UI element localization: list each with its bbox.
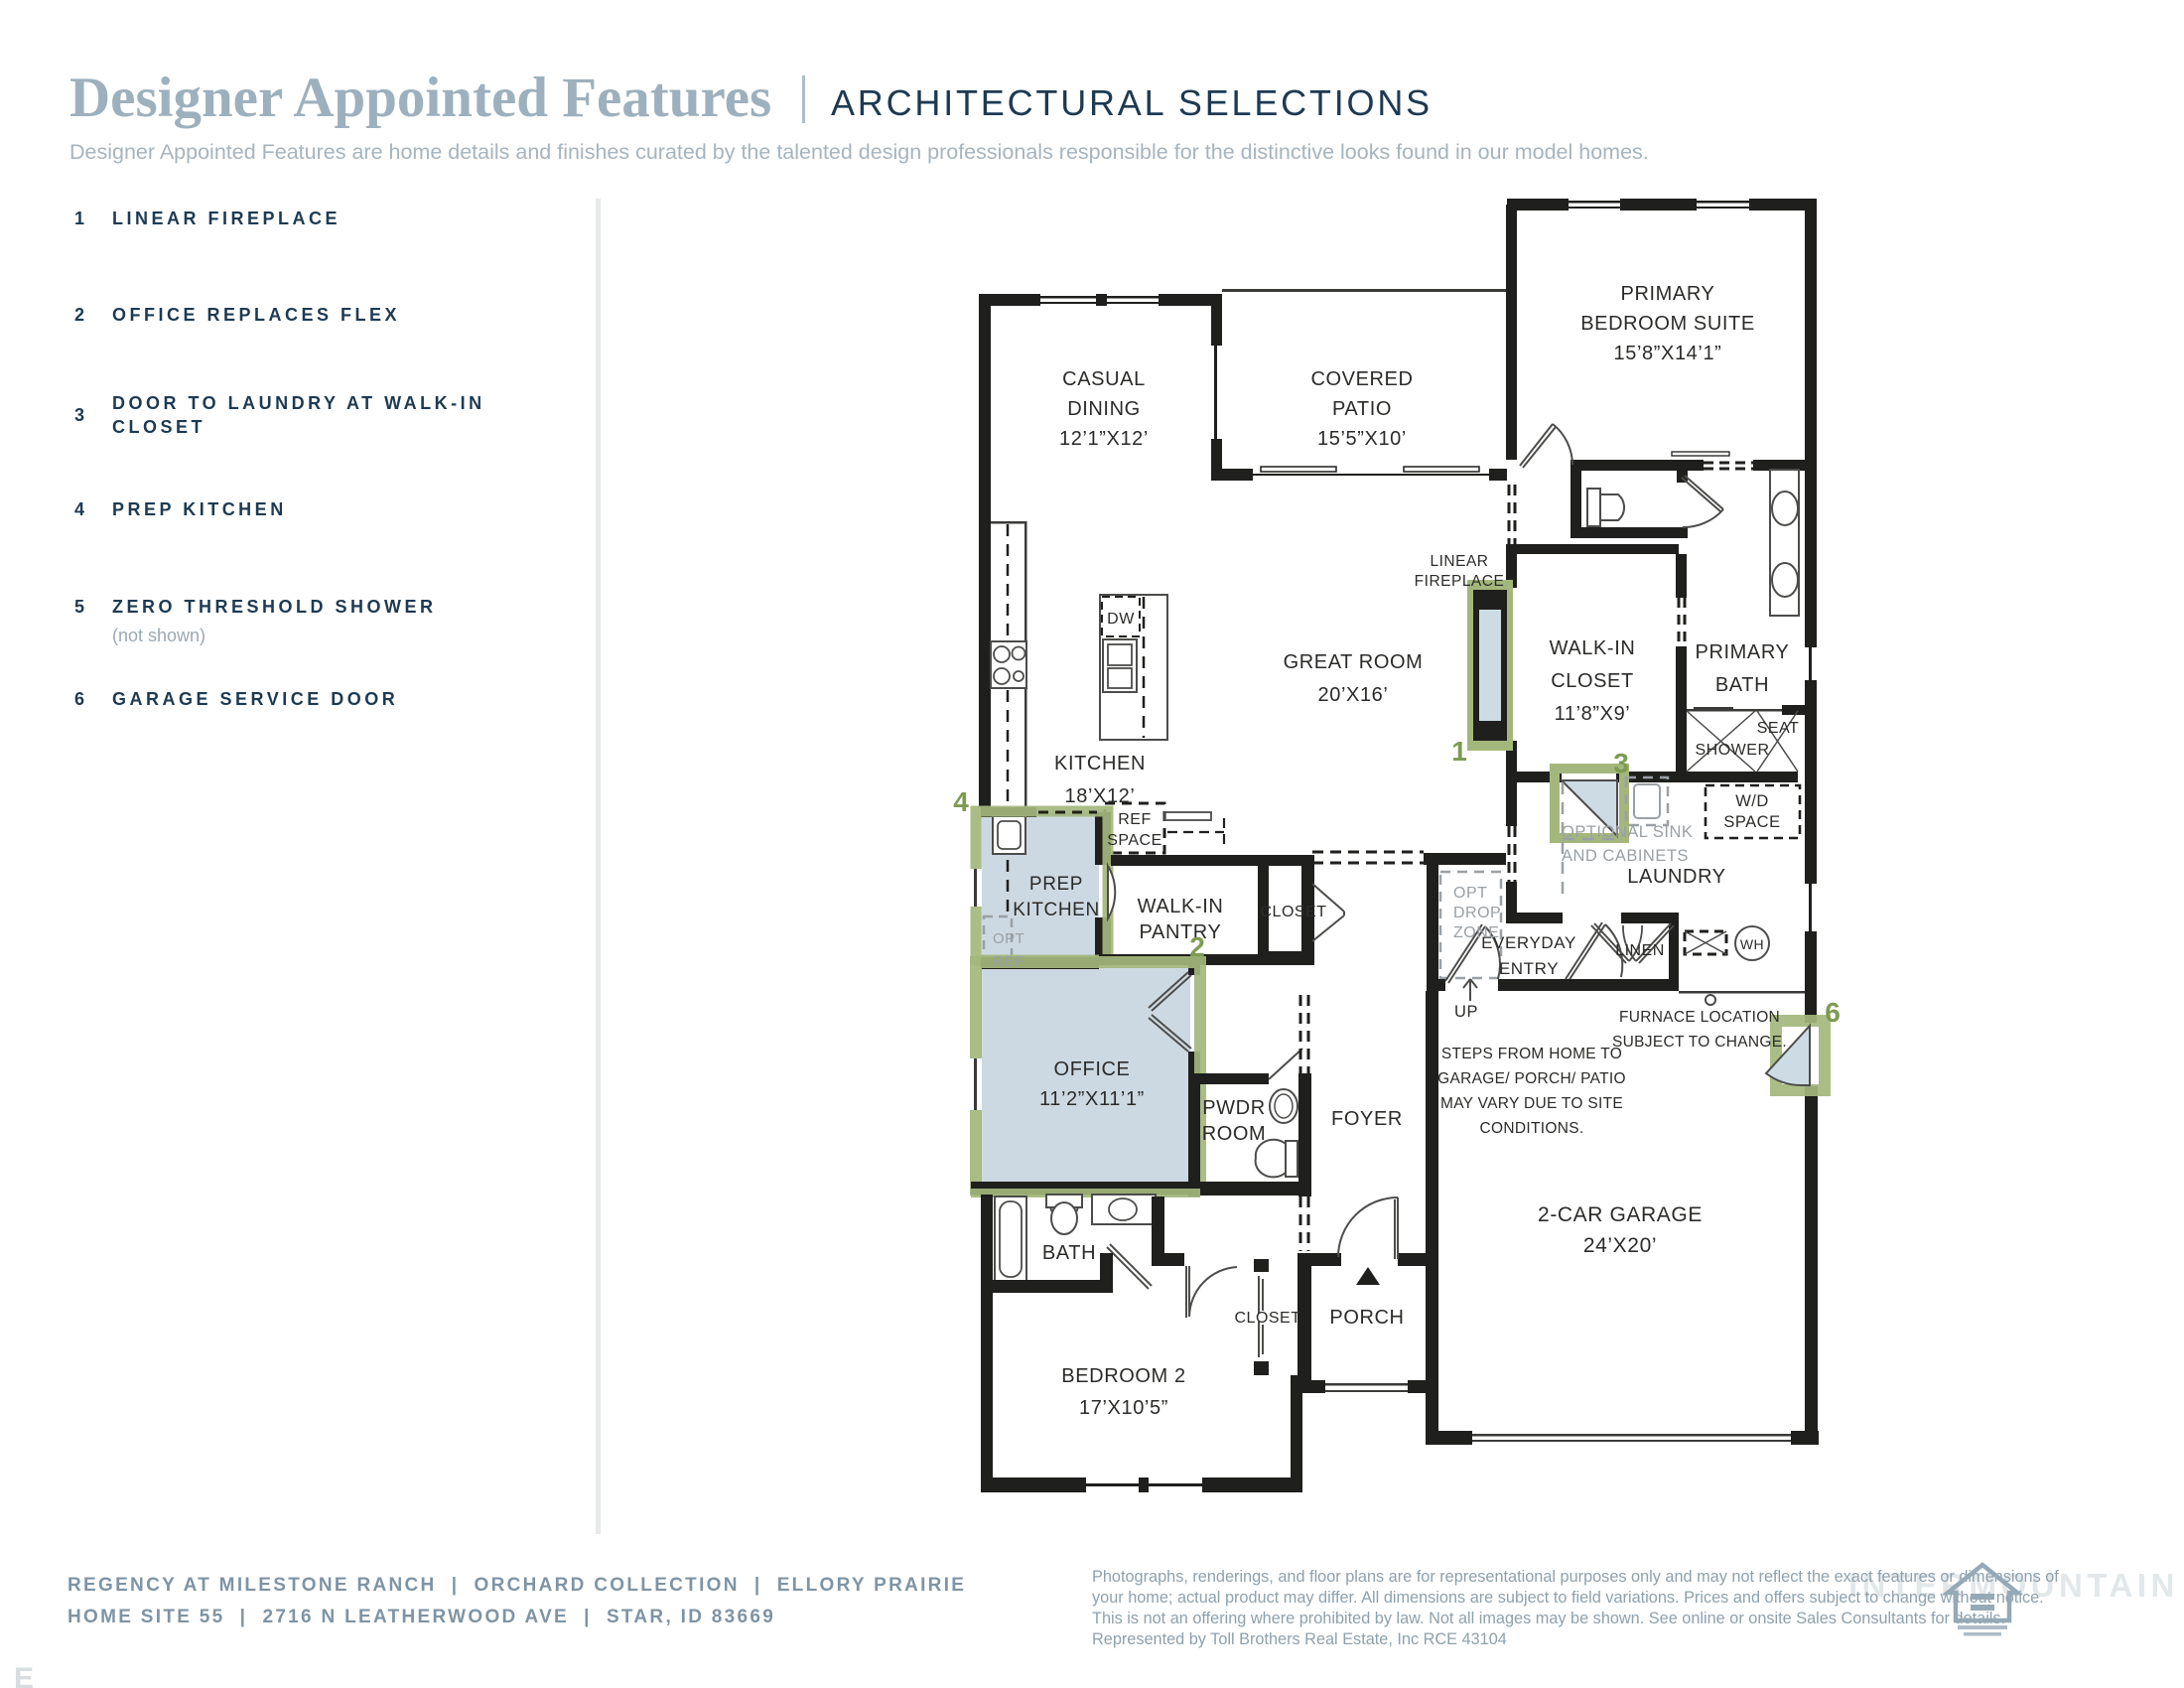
- svg-text:Represented by Toll Brothers R: Represented by Toll Brothers Real Estate…: [1092, 1630, 1507, 1648]
- svg-text:LINEAR: LINEAR: [1431, 553, 1489, 570]
- svg-text:REF: REF: [993, 953, 1024, 970]
- svg-text:2-CAR GARAGE: 2-CAR GARAGE: [1538, 1203, 1703, 1226]
- svg-text:FOYER: FOYER: [1331, 1108, 1403, 1130]
- svg-text:KITCHEN: KITCHEN: [1013, 900, 1100, 920]
- svg-text:11’2”X11’1”: 11’2”X11’1”: [1039, 1088, 1145, 1110]
- svg-text:ROOM: ROOM: [1202, 1123, 1267, 1145]
- svg-text:CONDITIONS.: CONDITIONS.: [1480, 1120, 1584, 1137]
- svg-text:OPT: OPT: [1453, 885, 1487, 902]
- svg-text:CLOSET: CLOSET: [1234, 1310, 1300, 1327]
- svg-text:(not shown): (not shown): [112, 626, 205, 645]
- svg-text:CLOSET: CLOSET: [1551, 670, 1634, 692]
- svg-text:DINING: DINING: [1067, 398, 1141, 420]
- svg-text:15’8”X14’1”: 15’8”X14’1”: [1614, 343, 1722, 364]
- svg-text:PRIMARY: PRIMARY: [1696, 641, 1790, 663]
- svg-text:AND CABINETS: AND CABINETS: [1562, 847, 1689, 865]
- svg-text:FURNACE LOCATION: FURNACE LOCATION: [1619, 1009, 1780, 1026]
- svg-text:6: 6: [1825, 997, 1841, 1028]
- svg-text:STEPS FROM HOME TO: STEPS FROM HOME TO: [1441, 1046, 1622, 1062]
- svg-text:SUBJECT TO CHANGE.: SUBJECT TO CHANGE.: [1612, 1034, 1787, 1051]
- svg-text:your home; actual product may: your home; actual product may differ. Al…: [1092, 1589, 2044, 1607]
- svg-text:REF: REF: [1118, 811, 1152, 828]
- svg-text:GARAGE SERVICE DOOR: GARAGE SERVICE DOOR: [112, 689, 398, 709]
- svg-text:4: 4: [953, 786, 969, 817]
- svg-text:LINEAR FIREPLACE: LINEAR FIREPLACE: [112, 209, 341, 228]
- svg-text:PREP KITCHEN: PREP KITCHEN: [112, 499, 287, 519]
- svg-text:24’X20’: 24’X20’: [1583, 1234, 1657, 1257]
- svg-text:UP: UP: [1454, 1003, 1478, 1021]
- svg-text:LINEN: LINEN: [1615, 942, 1665, 959]
- svg-text:GREAT ROOM: GREAT ROOM: [1284, 651, 1424, 673]
- svg-text:This is not an offering where: This is not an offering where prohibited…: [1092, 1610, 2005, 1627]
- svg-text:PATIO: PATIO: [1332, 398, 1392, 420]
- svg-text:2: 2: [1189, 931, 1205, 962]
- svg-text:3: 3: [74, 405, 84, 425]
- svg-text:20’X16’: 20’X16’: [1318, 684, 1389, 706]
- svg-text:ENTRY: ENTRY: [1499, 959, 1559, 978]
- svg-text:CASUAL: CASUAL: [1062, 368, 1146, 390]
- svg-text:COVERED: COVERED: [1310, 368, 1413, 390]
- svg-text:SPACE: SPACE: [1723, 813, 1780, 831]
- svg-text:OPT: OPT: [993, 930, 1024, 947]
- svg-text:WALK-IN: WALK-IN: [1550, 637, 1636, 659]
- svg-text:WH: WH: [1740, 936, 1764, 952]
- svg-text:PORCH: PORCH: [1329, 1307, 1404, 1329]
- svg-text:6: 6: [74, 689, 84, 709]
- svg-text:Designer Appointed Features: Designer Appointed Features: [69, 67, 771, 129]
- svg-text:11’8”X9’: 11’8”X9’: [1555, 703, 1631, 725]
- svg-text:BATH: BATH: [1715, 674, 1769, 696]
- svg-text:PRIMARY: PRIMARY: [1621, 283, 1715, 305]
- svg-text:SEAT: SEAT: [1757, 720, 1800, 737]
- svg-text:PANTRY: PANTRY: [1140, 921, 1222, 943]
- svg-text:OPTIONAL SINK: OPTIONAL SINK: [1562, 823, 1693, 841]
- svg-text:ZONE: ZONE: [1453, 924, 1499, 941]
- svg-text:BATH: BATH: [1042, 1242, 1096, 1264]
- svg-text:MAY VARY DUE TO SITE: MAY VARY DUE TO SITE: [1440, 1095, 1623, 1112]
- svg-text:Designer Appointed Features ar: Designer Appointed Features are home det…: [69, 140, 1649, 164]
- svg-text:HOME SITE 55 | 2716 N LEATHE: HOME SITE 55 | 2716 N LEATHERWOOD AVE | …: [68, 1607, 775, 1627]
- svg-text:LAUNDRY: LAUNDRY: [1627, 866, 1725, 888]
- svg-text:DOOR TO LAUNDRY AT WALK-IN: DOOR TO LAUNDRY AT WALK-IN: [112, 393, 485, 413]
- svg-text:WALK-IN: WALK-IN: [1138, 896, 1224, 917]
- svg-text:PREP: PREP: [1029, 874, 1083, 895]
- svg-text:SHOWER: SHOWER: [1696, 742, 1770, 759]
- svg-text:17’X10’5”: 17’X10’5”: [1079, 1397, 1168, 1419]
- svg-text:DW: DW: [1107, 611, 1135, 628]
- svg-text:KITCHEN: KITCHEN: [1054, 753, 1146, 774]
- svg-text:PWDR: PWDR: [1202, 1097, 1266, 1119]
- svg-text:1: 1: [74, 209, 84, 228]
- svg-text:SPACE: SPACE: [1107, 832, 1162, 849]
- svg-text:DROP: DROP: [1453, 905, 1501, 921]
- svg-text:E: E: [14, 1662, 34, 1688]
- svg-text:12’1”X12’: 12’1”X12’: [1059, 428, 1149, 450]
- svg-text:BEDROOM SUITE: BEDROOM SUITE: [1580, 313, 1755, 335]
- svg-text:W/D: W/D: [1735, 792, 1769, 810]
- svg-text:3: 3: [1613, 748, 1629, 778]
- svg-text:REGENCY AT MILESTONE RANCH |: REGENCY AT MILESTONE RANCH | ORCHARD COL…: [68, 1575, 966, 1596]
- svg-text:5: 5: [74, 597, 84, 617]
- svg-text:18’X12’: 18’X12’: [1065, 785, 1136, 807]
- svg-text:ARCHITECTURAL SELECTIONS: ARCHITECTURAL SELECTIONS: [831, 82, 1433, 123]
- svg-text:ZERO THRESHOLD SHOWER: ZERO THRESHOLD SHOWER: [112, 597, 437, 617]
- svg-text:Photographs, renderings, and f: Photographs, renderings, and floor plans…: [1092, 1568, 2059, 1586]
- svg-text:FIREPLACE: FIREPLACE: [1415, 573, 1505, 590]
- svg-text:GARAGE/ PORCH/ PATIO: GARAGE/ PORCH/ PATIO: [1437, 1070, 1626, 1087]
- svg-text:4: 4: [74, 499, 84, 519]
- svg-text:OFFICE: OFFICE: [1054, 1058, 1131, 1080]
- svg-text:OFFICE REPLACES FLEX: OFFICE REPLACES FLEX: [112, 305, 400, 325]
- svg-text:2: 2: [74, 305, 84, 325]
- svg-text:CLOSET: CLOSET: [112, 417, 205, 437]
- svg-text:1: 1: [1451, 736, 1467, 767]
- svg-text:CLOSET: CLOSET: [1260, 904, 1326, 920]
- svg-text:BEDROOM 2: BEDROOM 2: [1061, 1365, 1185, 1387]
- svg-text:15’5”X10’: 15’5”X10’: [1317, 428, 1407, 450]
